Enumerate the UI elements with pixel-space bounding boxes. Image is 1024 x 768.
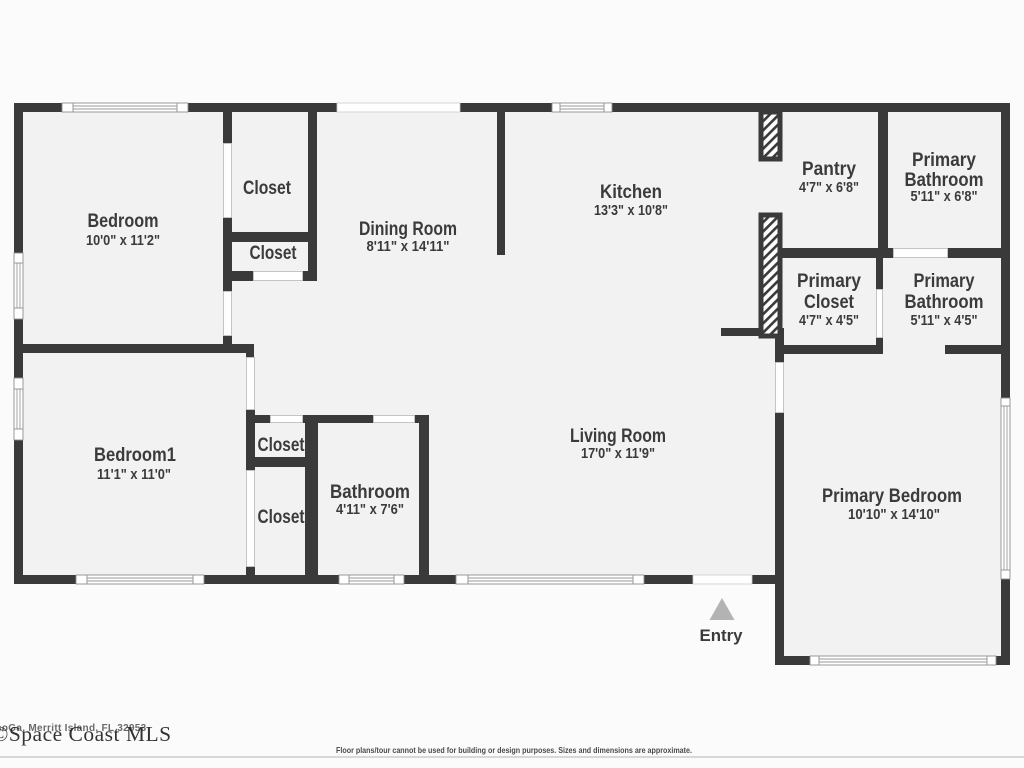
svg-text:Primary: Primary [912, 150, 976, 171]
svg-text:Bathroom: Bathroom [330, 482, 410, 503]
svg-text:Closet: Closet [804, 292, 855, 313]
svg-text:Closet: Closet [250, 243, 298, 264]
svg-text:10'0" x 11'2": 10'0" x 11'2" [86, 233, 160, 249]
svg-text:Floor plans/tour cannot be use: Floor plans/tour cannot be used for buil… [336, 745, 692, 755]
svg-text:8'11" x 14'11": 8'11" x 14'11" [367, 239, 450, 255]
svg-text:4'11" x 7'6": 4'11" x 7'6" [336, 502, 404, 518]
svg-text:17'0" x 11'9": 17'0" x 11'9" [581, 446, 655, 462]
svg-text:4'7" x 6'8": 4'7" x 6'8" [799, 180, 859, 196]
svg-text:Kitchen: Kitchen [600, 182, 662, 203]
svg-text:13'3" x 10'8": 13'3" x 10'8" [594, 203, 668, 219]
svg-text:Bedroom1: Bedroom1 [94, 445, 176, 466]
svg-text:Primary: Primary [797, 271, 861, 292]
svg-text:Closet: Closet [258, 435, 306, 456]
svg-text:Primary Bedroom: Primary Bedroom [822, 486, 962, 507]
svg-text:Pantry: Pantry [802, 159, 856, 180]
svg-text:5'11" x 6'8": 5'11" x 6'8" [911, 189, 978, 205]
svg-text:10'10" x 14'10": 10'10" x 14'10" [848, 507, 940, 523]
svg-text:Bathroom: Bathroom [905, 170, 984, 191]
svg-text:©Space Coast MLS: ©Space Coast MLS [0, 722, 172, 746]
svg-text:Entry: Entry [700, 627, 744, 645]
svg-text:Living Room: Living Room [570, 426, 666, 447]
svg-text:Bathroom: Bathroom [905, 292, 984, 313]
svg-text:4'7" x 4'5": 4'7" x 4'5" [799, 313, 859, 329]
svg-text:Bedroom: Bedroom [88, 211, 159, 232]
svg-text:Dining Room: Dining Room [359, 219, 457, 240]
svg-text:Closet: Closet [243, 178, 292, 199]
svg-text:Closet: Closet [258, 507, 306, 528]
svg-text:5'11" x 4'5": 5'11" x 4'5" [911, 313, 978, 329]
svg-text:Primary: Primary [914, 271, 975, 292]
svg-text:11'1" x 11'0": 11'1" x 11'0" [97, 467, 171, 483]
